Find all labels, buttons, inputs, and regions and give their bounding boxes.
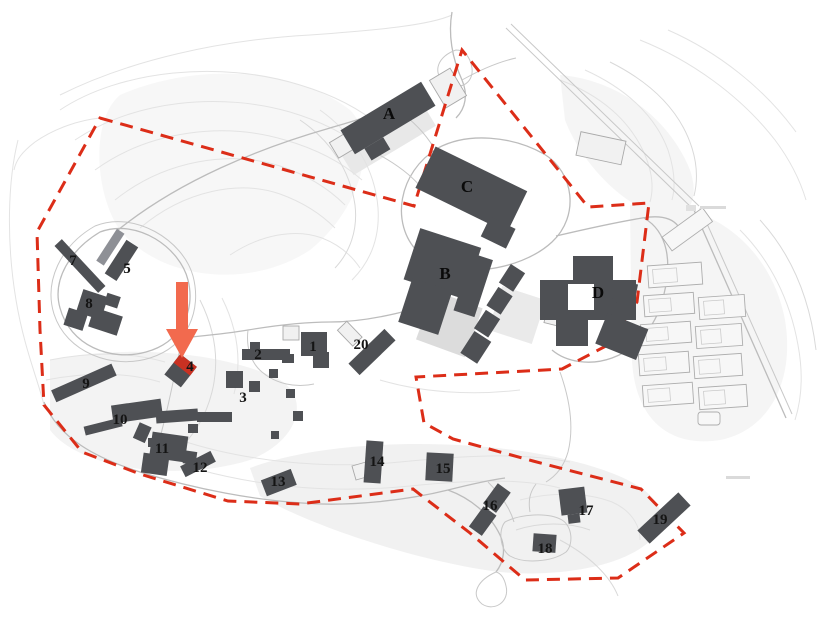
- label-building-15: 15: [436, 461, 451, 477]
- site-plan-drawing: 1 2 3 4 5 7 8 9 10 11 12 13 14 15 16 17 …: [0, 0, 825, 621]
- annotation-mark: [726, 476, 750, 479]
- label-building-B: B: [439, 264, 450, 283]
- label-building-17: 17: [579, 503, 595, 519]
- label-building-10: 10: [113, 412, 128, 428]
- label-building-1: 1: [309, 339, 317, 355]
- label-building-4: 4: [186, 359, 194, 375]
- label-building-2: 2: [254, 347, 262, 363]
- label-building-20: 20: [354, 337, 369, 353]
- label-building-A: A: [383, 104, 396, 123]
- label-building-7: 7: [69, 253, 77, 269]
- label-building-11: 11: [155, 441, 169, 457]
- label-building-8: 8: [85, 296, 93, 312]
- label-building-D: D: [592, 283, 604, 302]
- label-building-19: 19: [653, 512, 668, 528]
- label-building-13: 13: [271, 474, 286, 490]
- label-building-14: 14: [370, 454, 386, 470]
- label-building-16: 16: [483, 498, 499, 514]
- label-building-5: 5: [123, 261, 131, 277]
- label-building-3: 3: [239, 390, 247, 406]
- annotation-mark: [700, 206, 726, 209]
- annotation-mark: [686, 205, 696, 211]
- label-building-9: 9: [82, 376, 90, 392]
- label-building-C: C: [461, 177, 473, 196]
- site-plan: 1 2 3 4 5 7 8 9 10 11 12 13 14 15 16 17 …: [0, 0, 825, 621]
- building-2: [242, 342, 294, 363]
- label-building-12: 12: [193, 460, 208, 476]
- label-building-18: 18: [538, 541, 553, 557]
- locator-arrow-icon: [166, 282, 198, 358]
